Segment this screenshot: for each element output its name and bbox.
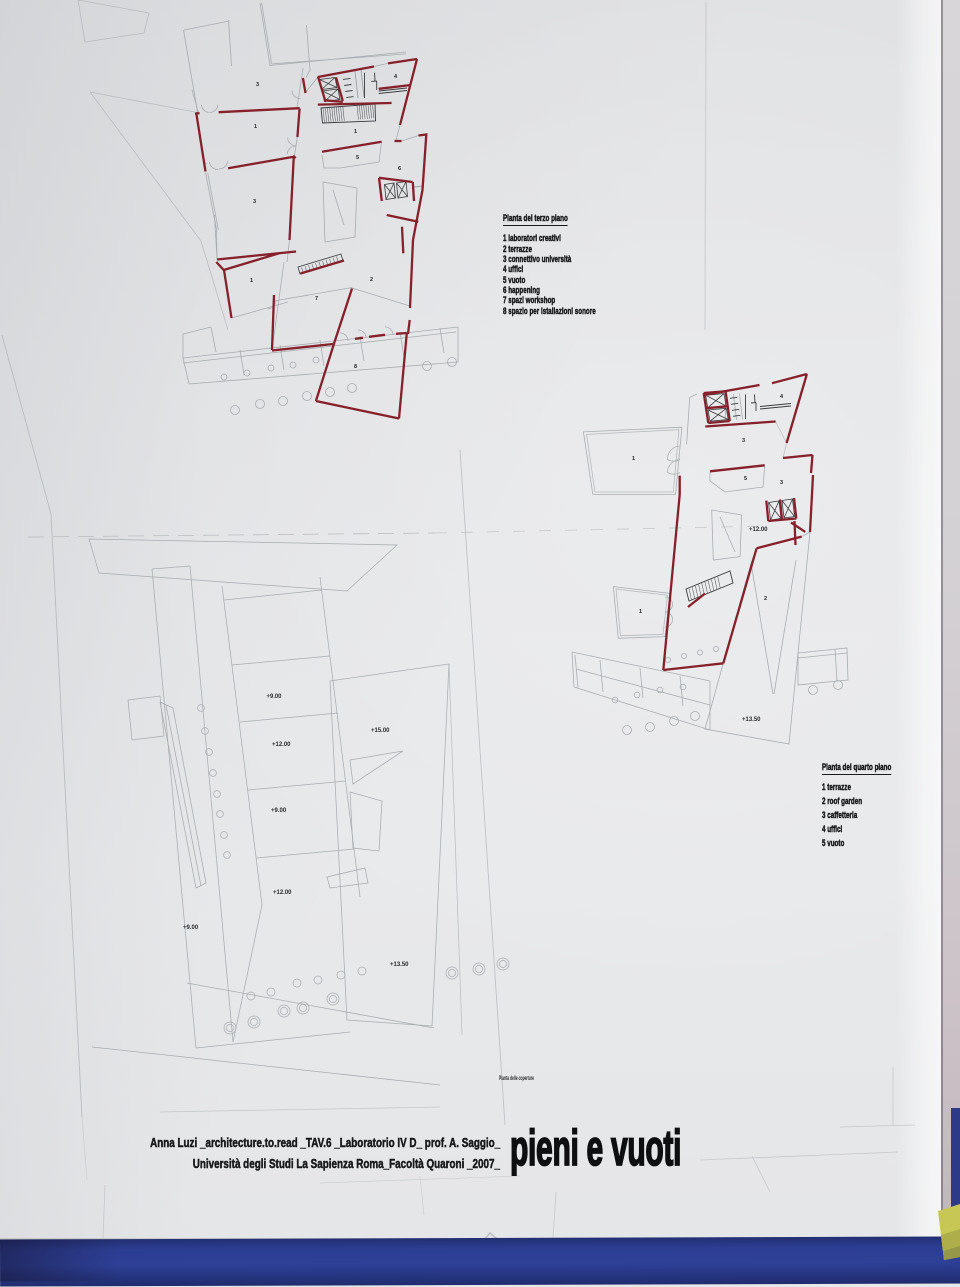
svg-text:Pianta delle coperture: Pianta delle coperture xyxy=(499,1075,534,1082)
svg-text:1: 1 xyxy=(250,278,253,284)
svg-text:4: 4 xyxy=(780,394,784,400)
svg-text:+12.00: +12.00 xyxy=(749,527,768,533)
svg-text:1: 1 xyxy=(632,456,635,462)
svg-text:1: 1 xyxy=(354,129,357,135)
svg-text:5: 5 xyxy=(356,155,359,161)
svg-text:+12.00: +12.00 xyxy=(272,742,291,748)
svg-text:5: 5 xyxy=(744,476,747,482)
svg-text:8: 8 xyxy=(354,364,357,370)
svg-text:+15.00: +15.00 xyxy=(371,728,390,734)
svg-text:1: 1 xyxy=(254,124,257,130)
svg-text:+13.50: +13.50 xyxy=(390,962,409,968)
svg-text:3: 3 xyxy=(742,438,745,444)
svg-text:7: 7 xyxy=(315,296,318,302)
svg-text:3: 3 xyxy=(253,199,256,205)
svg-text:2: 2 xyxy=(764,596,767,602)
svg-text:3: 3 xyxy=(256,82,259,88)
svg-text:1: 1 xyxy=(639,609,642,615)
svg-text:+9.00: +9.00 xyxy=(271,808,287,814)
svg-text:+12.00: +12.00 xyxy=(273,890,292,896)
svg-text:+13.50: +13.50 xyxy=(742,717,761,723)
svg-text:+9.00: +9.00 xyxy=(267,694,283,700)
svg-text:6: 6 xyxy=(398,166,401,172)
svg-text:2: 2 xyxy=(370,277,373,283)
svg-text:3: 3 xyxy=(780,480,783,486)
svg-text:+9.00: +9.00 xyxy=(183,925,199,931)
svg-text:4: 4 xyxy=(394,74,398,80)
